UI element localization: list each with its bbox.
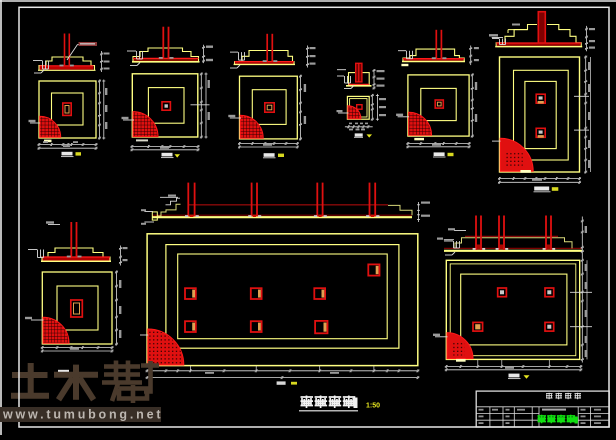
svg-text:1:50: 1:50 (366, 403, 380, 410)
svg-text:www.tumubong.net: www.tumubong.net (2, 408, 163, 422)
